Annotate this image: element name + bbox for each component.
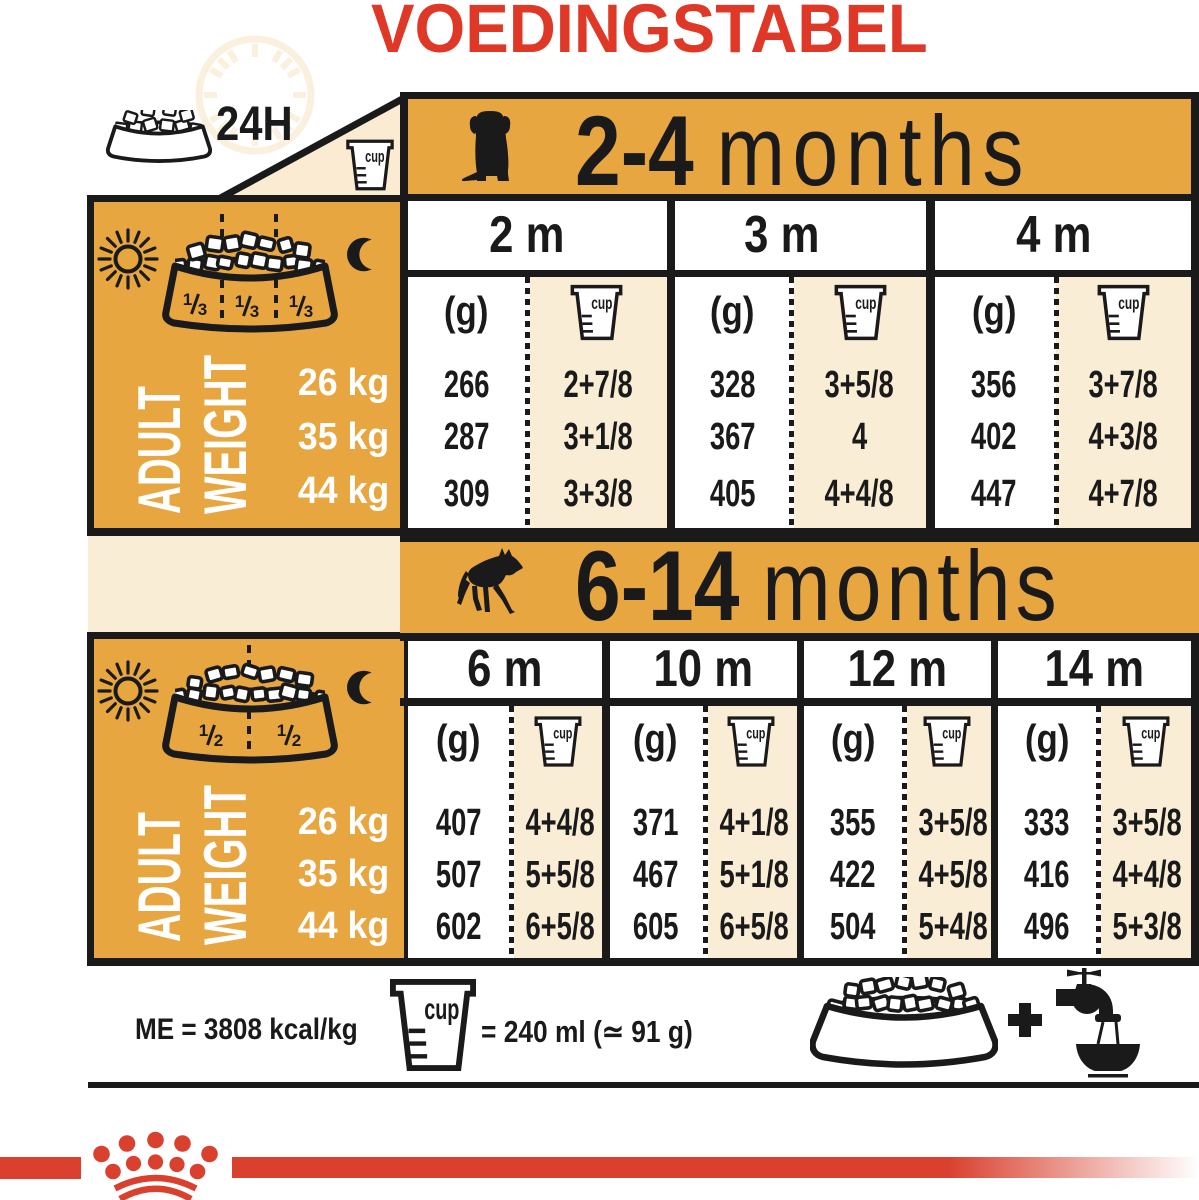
svg-text:1: 1 [183, 290, 192, 309]
svg-text:WEIGHT: WEIGHT [192, 785, 259, 945]
svg-text:WEIGHT: WEIGHT [192, 355, 259, 514]
svg-text:1: 1 [199, 721, 208, 740]
svg-text:3: 3 [304, 302, 313, 321]
svg-text:1: 1 [289, 292, 298, 311]
svg-text:ADULT: ADULT [126, 386, 193, 514]
svg-text:2: 2 [292, 731, 301, 750]
svg-text:3: 3 [250, 302, 259, 321]
svg-text:2: 2 [214, 731, 223, 750]
svg-text:1: 1 [235, 292, 244, 311]
svg-text:ADULT: ADULT [126, 812, 193, 942]
svg-text:1: 1 [277, 721, 286, 740]
svg-text:3: 3 [198, 300, 207, 319]
